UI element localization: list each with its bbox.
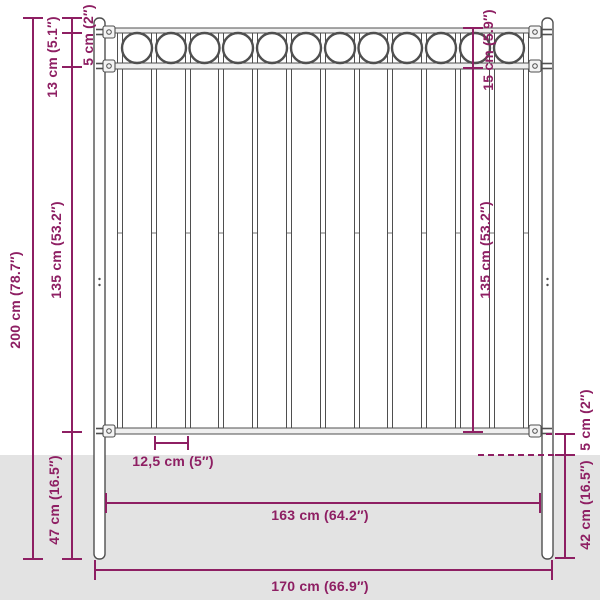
mounting-bracket (529, 60, 541, 72)
ring (257, 33, 287, 63)
vertical-bar (422, 69, 427, 428)
ring (359, 33, 389, 63)
post-screw-dot (98, 284, 100, 286)
post-screw-dot (546, 278, 548, 280)
ring (122, 33, 152, 63)
ring (223, 33, 253, 63)
dimension-label-underground-right: 42 cm (16.5″) (577, 460, 593, 549)
vertical-bar (287, 69, 292, 428)
ring (426, 33, 456, 63)
dimension-label-panel-height-left: 135 cm (53.2″) (48, 201, 64, 298)
vertical-bar (118, 69, 123, 428)
post-screw-dot (98, 278, 100, 280)
mounting-bracket (103, 425, 115, 437)
vertical-bar (321, 69, 326, 428)
dimension-label-panel-width: 163 cm (64.2″) (271, 507, 368, 523)
fence-dimension-diagram: 200 cm (78.7″) 13 cm (5.1″) 5 cm (2″) 13… (0, 0, 600, 600)
dimension-label-total-width: 170 cm (66.9″) (271, 578, 368, 594)
dimension-label-post-top-offset: 5 cm (2″) (80, 4, 96, 65)
ring (190, 33, 220, 63)
ring (325, 33, 355, 63)
dimension-label-panel-height-right: 135 cm (53.2″) (477, 201, 493, 298)
mounting-bracket (529, 425, 541, 437)
vertical-bars (118, 69, 529, 428)
fence-post-left (94, 18, 105, 559)
vertical-bar (388, 69, 393, 428)
ring (392, 33, 422, 63)
dimension-label-rail-to-ground: 5 cm (2″) (577, 389, 593, 450)
dimension-label-height-total: 200 cm (78.7″) (7, 251, 23, 348)
dimension-label-underground-left: 47 cm (16.5″) (46, 455, 62, 544)
ring (156, 33, 186, 63)
ring (291, 33, 321, 63)
dimension-label-bar-spacing: 12,5 cm (5″) (132, 453, 213, 469)
mounting-bracket (103, 26, 115, 38)
vertical-bar (253, 69, 258, 428)
vertical-bar (186, 69, 191, 428)
dimension-label-ornament-band: 15 cm (5.9″) (480, 9, 496, 90)
post-screw-dot (546, 284, 548, 286)
dimension-label-top-ornament-height: 13 cm (5.1″) (44, 16, 60, 97)
ring (494, 33, 524, 63)
vertical-bar (219, 69, 224, 428)
vertical-bar (524, 69, 529, 428)
vertical-bar (456, 69, 461, 428)
vertical-bar (355, 69, 360, 428)
vertical-bar (152, 69, 157, 428)
fence-post-right (542, 18, 553, 559)
mounting-bracket (103, 60, 115, 72)
mounting-bracket (529, 26, 541, 38)
